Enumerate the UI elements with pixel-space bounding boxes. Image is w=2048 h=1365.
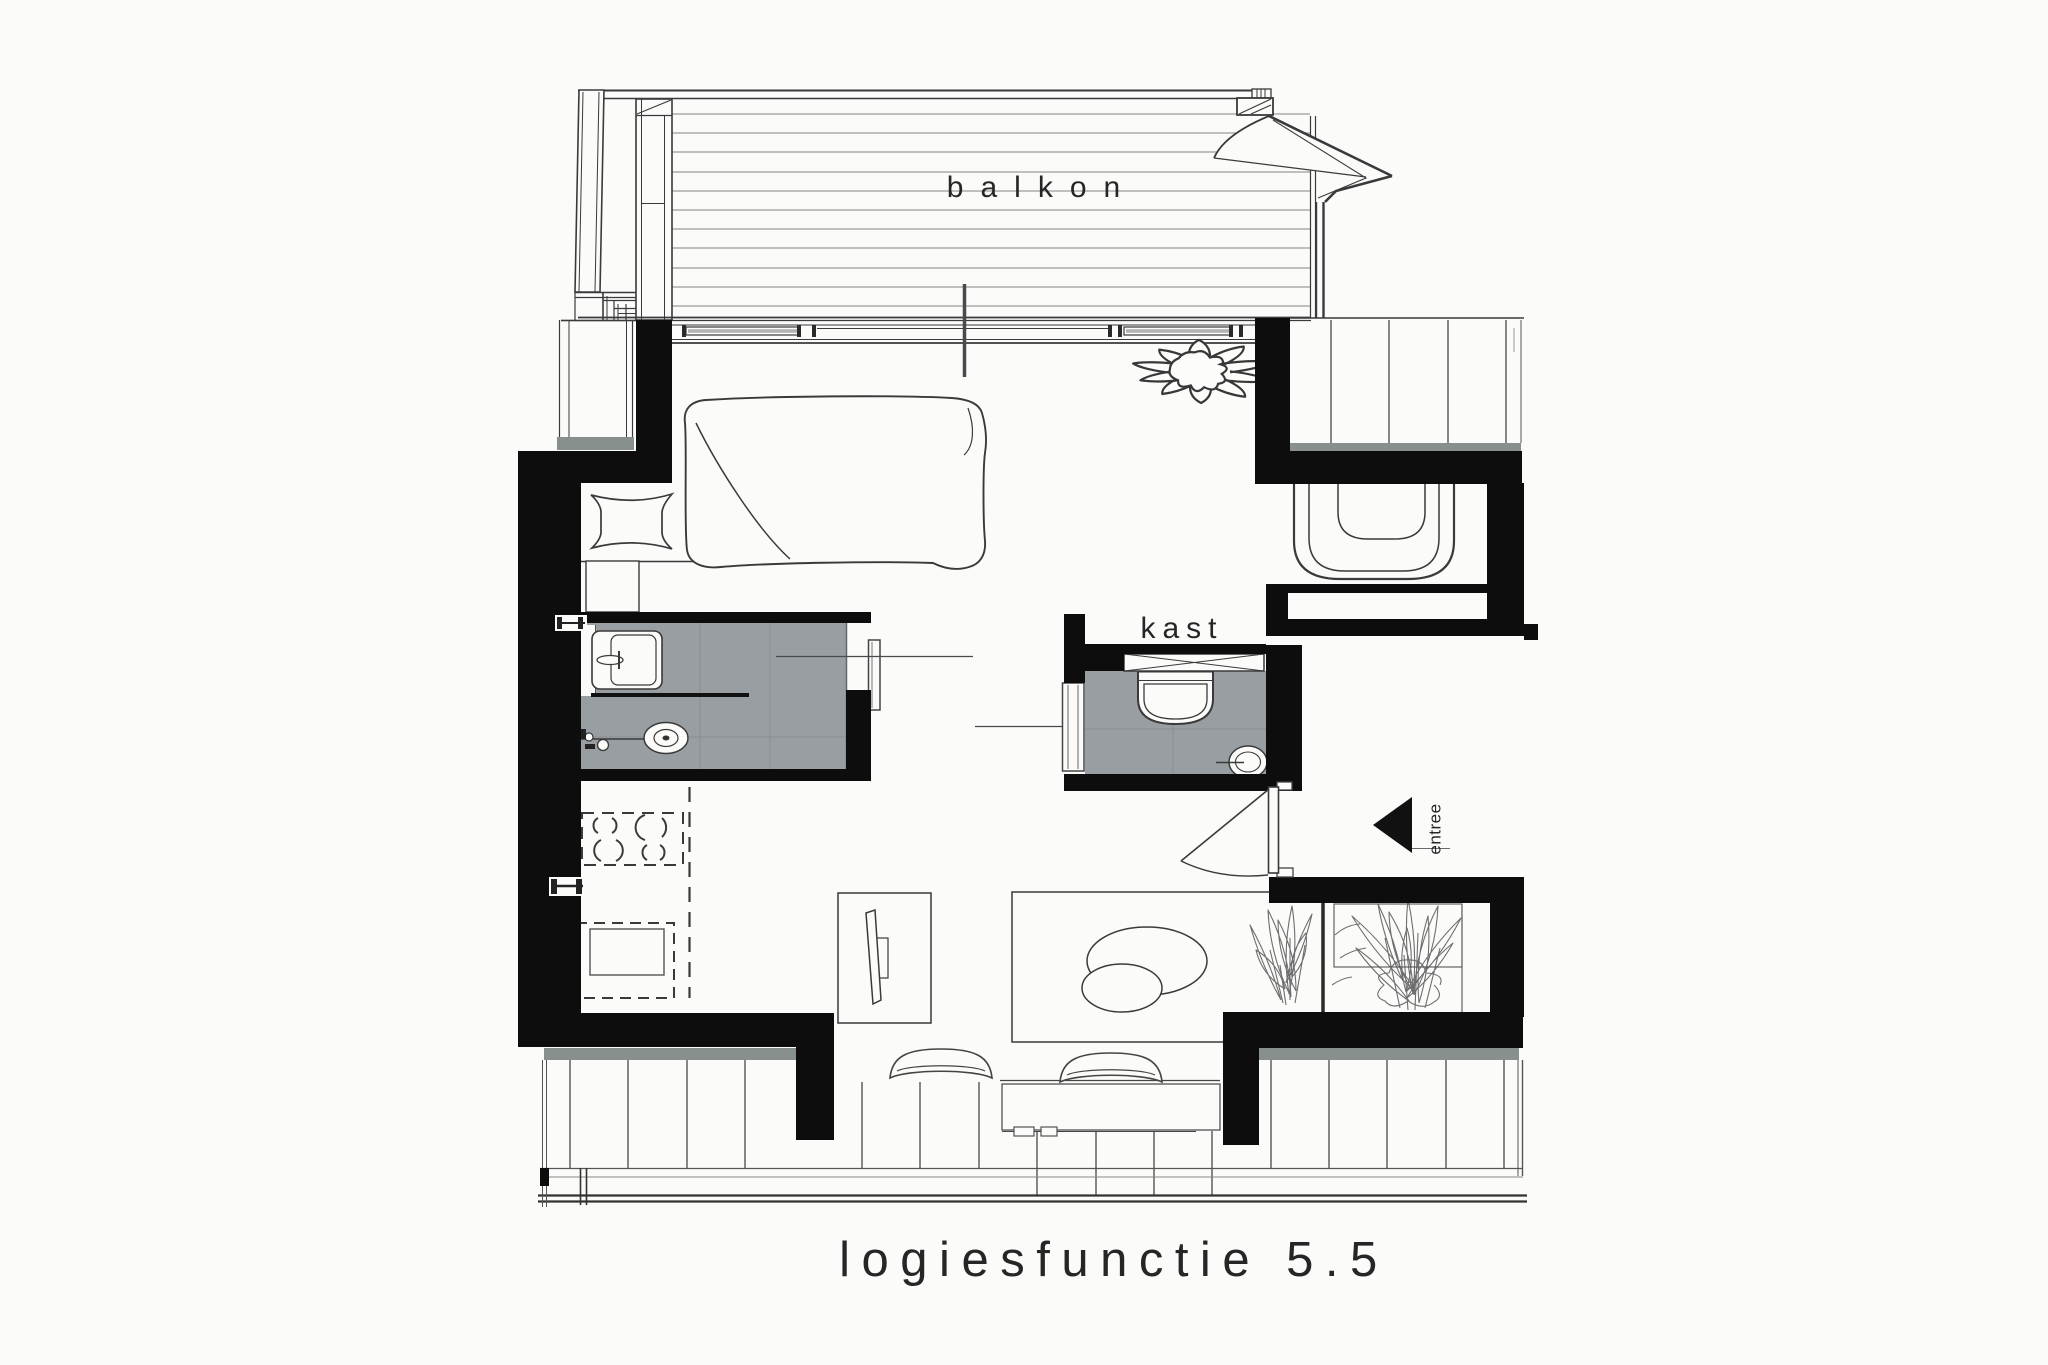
svg-text:balkon: balkon (947, 171, 1137, 204)
svg-text:logiesfunctie 5.5: logiesfunctie 5.5 (839, 1233, 1389, 1287)
svg-text:entree: entree (1425, 803, 1444, 854)
svg-text:kast: kast (1140, 612, 1223, 645)
